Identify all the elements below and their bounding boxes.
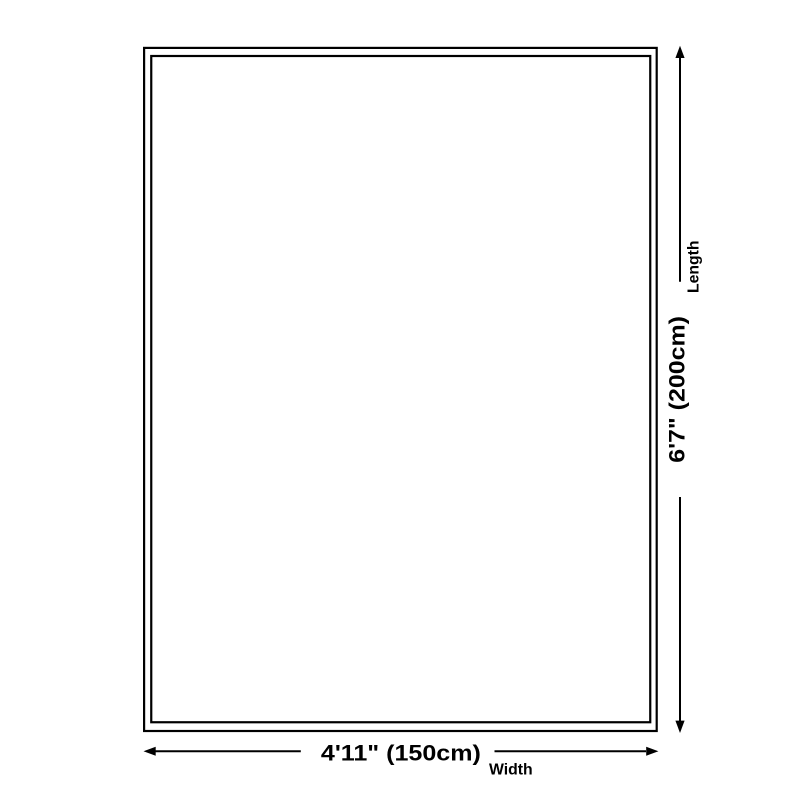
svg-text:6'7" (200cm): 6'7" (200cm) bbox=[665, 316, 690, 463]
svg-text:Width: Width bbox=[489, 761, 533, 778]
svg-text:4'11" (150cm): 4'11" (150cm) bbox=[321, 740, 481, 765]
svg-text:Length: Length bbox=[686, 241, 703, 294]
